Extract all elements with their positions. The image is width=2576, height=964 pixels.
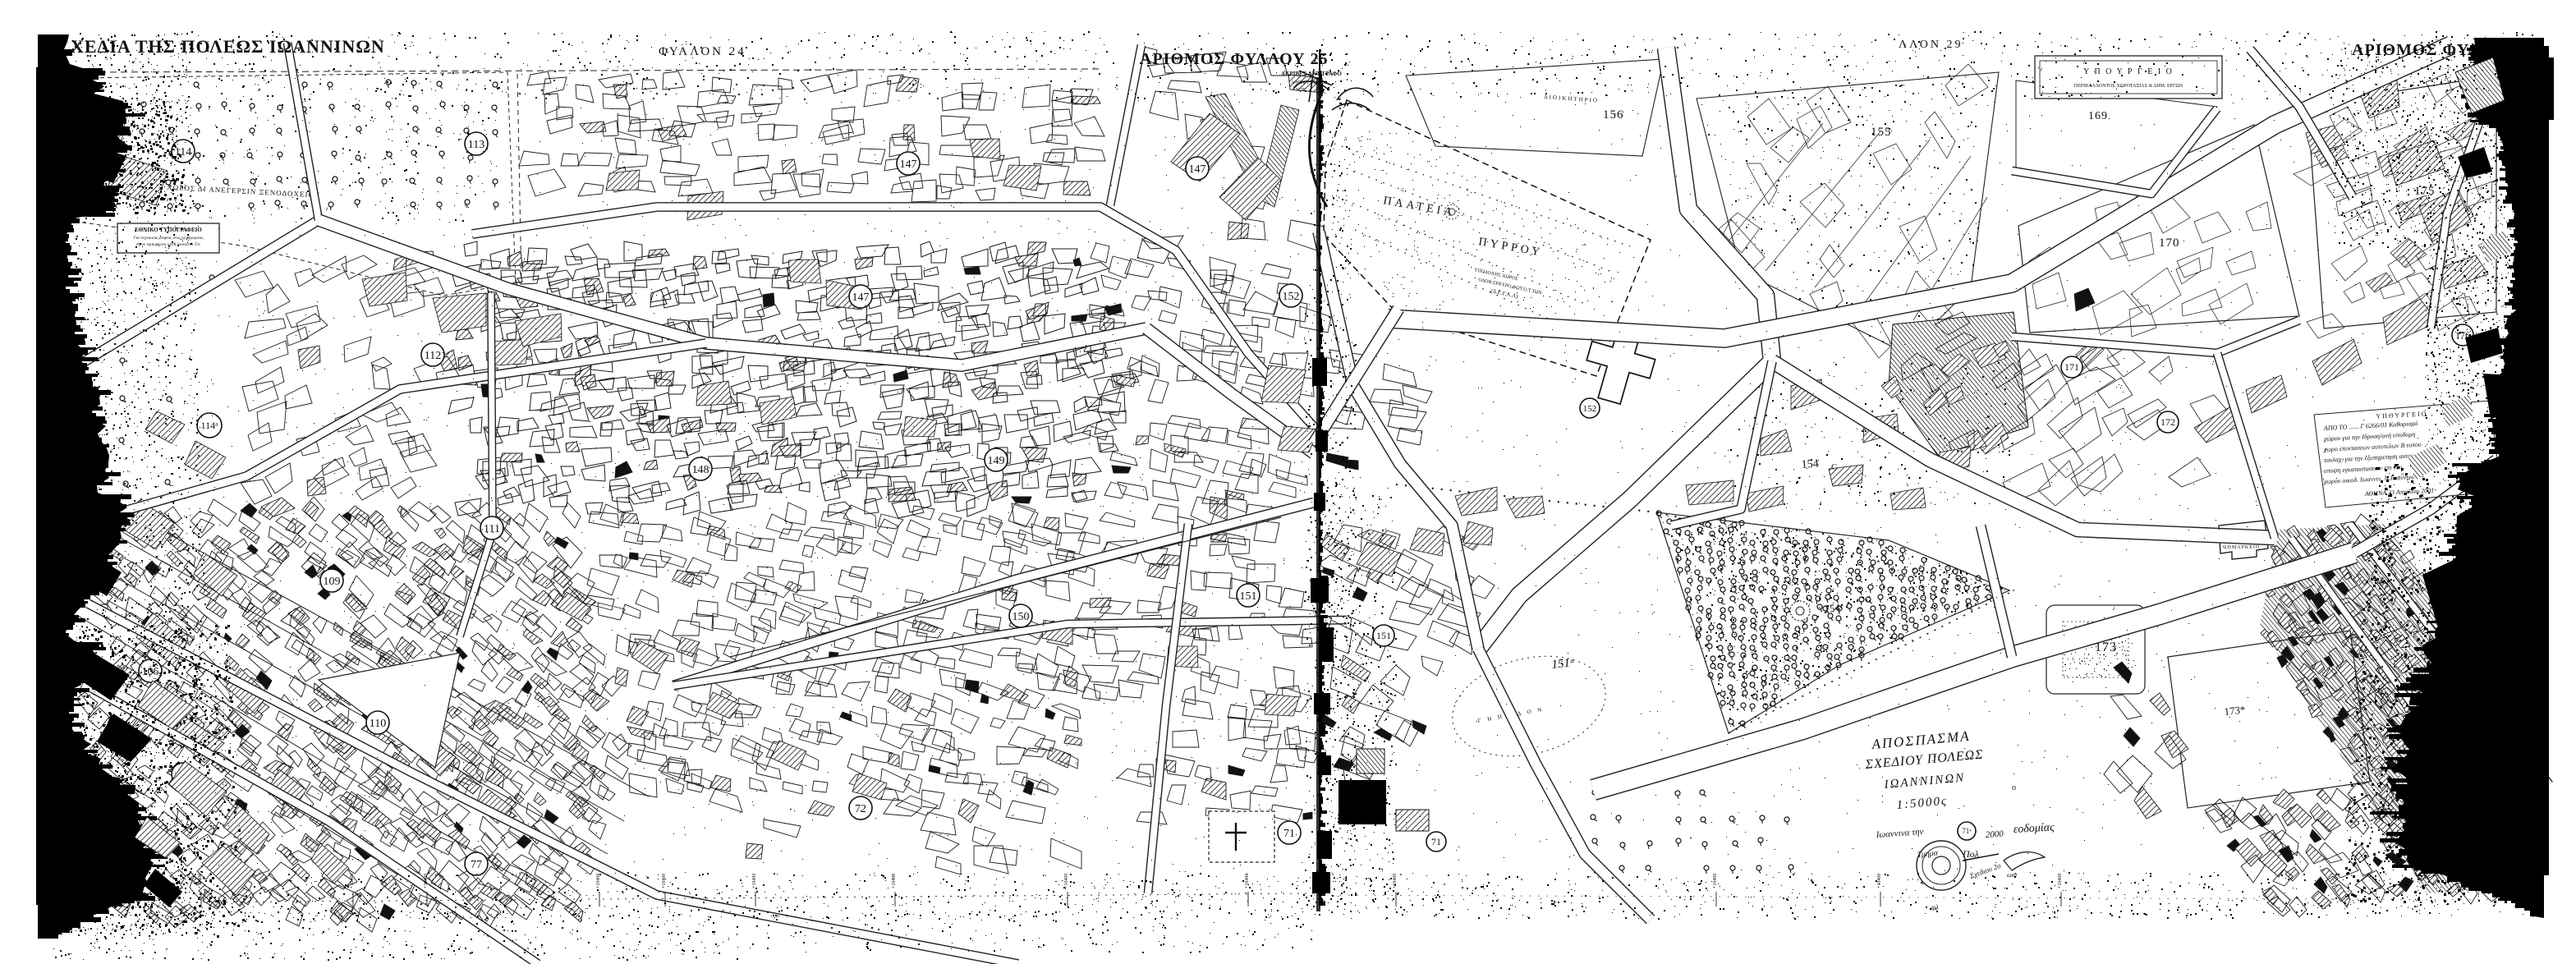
- svg-text:εοδομίας: εοδομίας: [2013, 821, 2055, 836]
- svg-text:C: C: [1831, 462, 1837, 472]
- svg-text:ΤΟΣ: ΤΟΣ: [1296, 88, 1306, 93]
- svg-text:173*: 173*: [2224, 703, 2246, 718]
- svg-text:ΦΥΛΛΟΝ 24: ΦΥΛΛΟΝ 24: [659, 45, 746, 58]
- svg-text:ο: ο: [2012, 783, 2016, 792]
- svg-text:71: 71: [1283, 828, 1295, 840]
- svg-text:170: 170: [2159, 236, 2180, 250]
- svg-text:ΑΡΙΘΜΟΣ ΦΥΛΛΟΥ 25: ΑΡΙΘΜΟΣ ΦΥΛΛΟΥ 25: [1140, 50, 1329, 68]
- svg-text:109: 109: [324, 576, 341, 588]
- svg-text:148: 148: [692, 464, 709, 476]
- svg-text:+10400: +10400: [1877, 874, 1882, 888]
- svg-text:113: 113: [468, 139, 484, 151]
- svg-text:156: 156: [1603, 108, 1624, 122]
- svg-text:152: 152: [1283, 291, 1300, 303]
- svg-text:φλ: φλ: [1931, 903, 1939, 911]
- svg-text:110: 110: [370, 718, 386, 730]
- svg-text:+10400: +10400: [752, 874, 757, 888]
- svg-text:72: 72: [855, 803, 866, 815]
- svg-text:71: 71: [1431, 836, 1441, 847]
- svg-text:154: 154: [1801, 458, 1819, 471]
- svg-text:147: 147: [900, 158, 917, 171]
- svg-text:147: 147: [1189, 163, 1206, 176]
- svg-text:147: 147: [852, 291, 870, 304]
- svg-text:151: 151: [1240, 590, 1257, 603]
- svg-text:2000: 2000: [1985, 829, 2004, 840]
- svg-text:ωστ: ωστ: [2007, 871, 2018, 879]
- svg-text:+10400: +10400: [350, 874, 355, 888]
- svg-text:+10400: +10400: [892, 874, 897, 888]
- svg-text:171: 171: [2064, 361, 2079, 373]
- svg-text:172: 172: [2160, 416, 2175, 428]
- svg-text:111: 111: [484, 523, 500, 535]
- svg-text:+10400: +10400: [424, 874, 429, 888]
- svg-text:+10400: +10400: [596, 874, 601, 888]
- svg-text:Υ Π Ο Υ Ρ Γ Ε Ι Ο: Υ Π Ο Υ Ρ Γ Ε Ι Ο: [2083, 67, 2174, 76]
- svg-text:150: 150: [1012, 611, 1030, 623]
- svg-text:151ᵃ: 151ᵃ: [1551, 656, 1576, 672]
- svg-text:+10400: +10400: [2058, 874, 2063, 888]
- svg-text:154: 154: [1824, 601, 1841, 615]
- svg-text:ΛΛΟΝ 29: ΛΛΟΝ 29: [1899, 39, 1963, 51]
- svg-text:155: 155: [1871, 126, 1892, 139]
- svg-text:71ᵃ: 71ᵃ: [1962, 827, 1972, 835]
- svg-text:+10400: +10400: [1245, 874, 1250, 888]
- svg-text:+10400: +10400: [662, 874, 667, 888]
- svg-text:149: 149: [988, 455, 1005, 467]
- svg-text:152: 152: [1583, 404, 1597, 414]
- svg-text:ΔΗΜΑΡΚΕΙΟ: ΔΗΜΑΡΚΕΙΟ: [2224, 545, 2261, 550]
- svg-text:114: 114: [175, 146, 191, 158]
- svg-text:151: 151: [1376, 630, 1391, 641]
- svg-text:114ᵃ: 114ᵃ: [201, 420, 219, 431]
- svg-text:169: 169: [2088, 110, 2108, 122]
- svg-text:+10400: +10400: [1064, 874, 1069, 888]
- svg-text:112: 112: [425, 350, 441, 362]
- svg-text:+10400: +10400: [1713, 874, 1718, 888]
- svg-text:+10400: +10400: [1393, 874, 1398, 888]
- svg-text:77: 77: [471, 859, 482, 871]
- svg-text:Για τεχνικούς λόγους στις ηλεδ: Για τεχνικούς λόγους στις ηλεδρομούς: [134, 236, 204, 241]
